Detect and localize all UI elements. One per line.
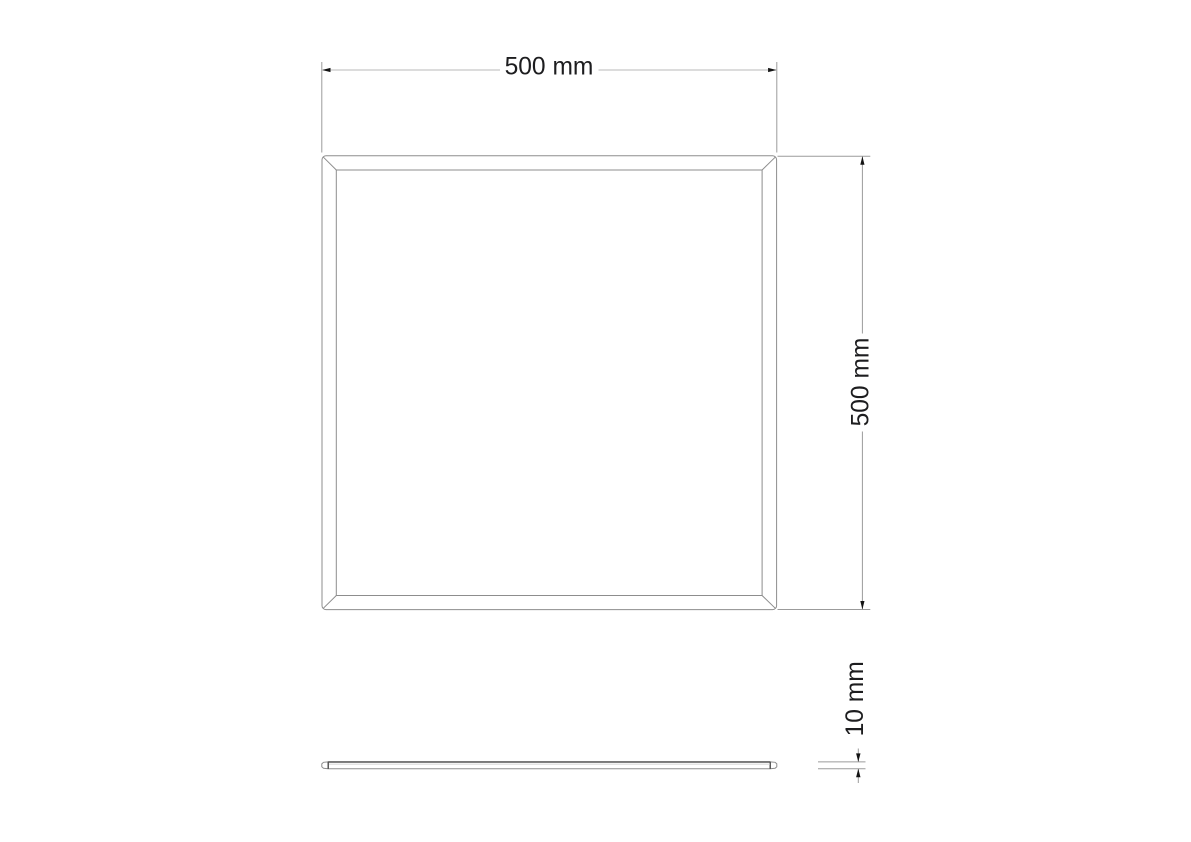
svg-text:500 mm: 500 mm — [505, 54, 594, 81]
svg-text:500 mm: 500 mm — [848, 338, 875, 427]
svg-text:10 mm: 10 mm — [842, 661, 869, 736]
